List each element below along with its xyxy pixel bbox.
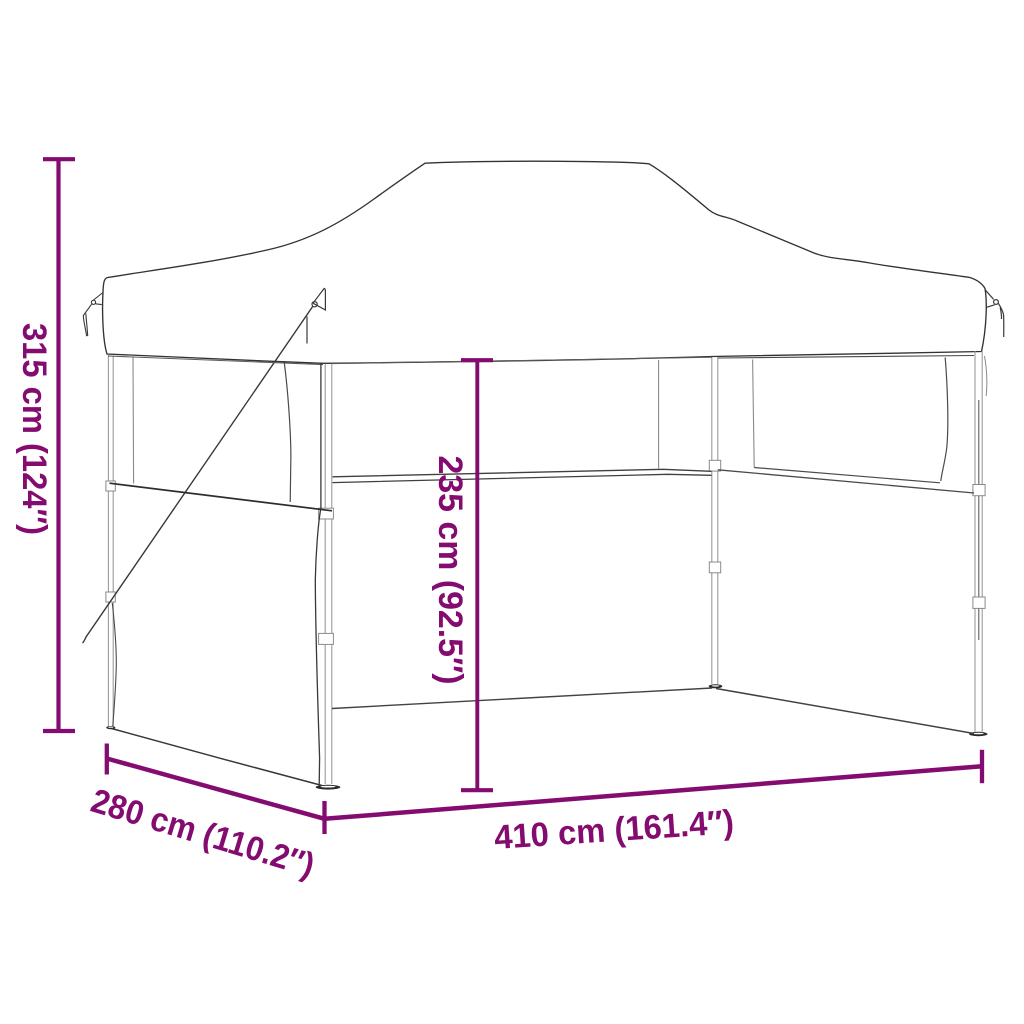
svg-text:410 cm (161.4″): 410 cm (161.4″) [493,803,735,857]
svg-text:235 cm (92.5″): 235 cm (92.5″) [431,456,469,685]
svg-text:315 cm (124″): 315 cm (124″) [15,323,53,535]
svg-text:280 cm (110.2″): 280 cm (110.2″) [87,782,319,885]
